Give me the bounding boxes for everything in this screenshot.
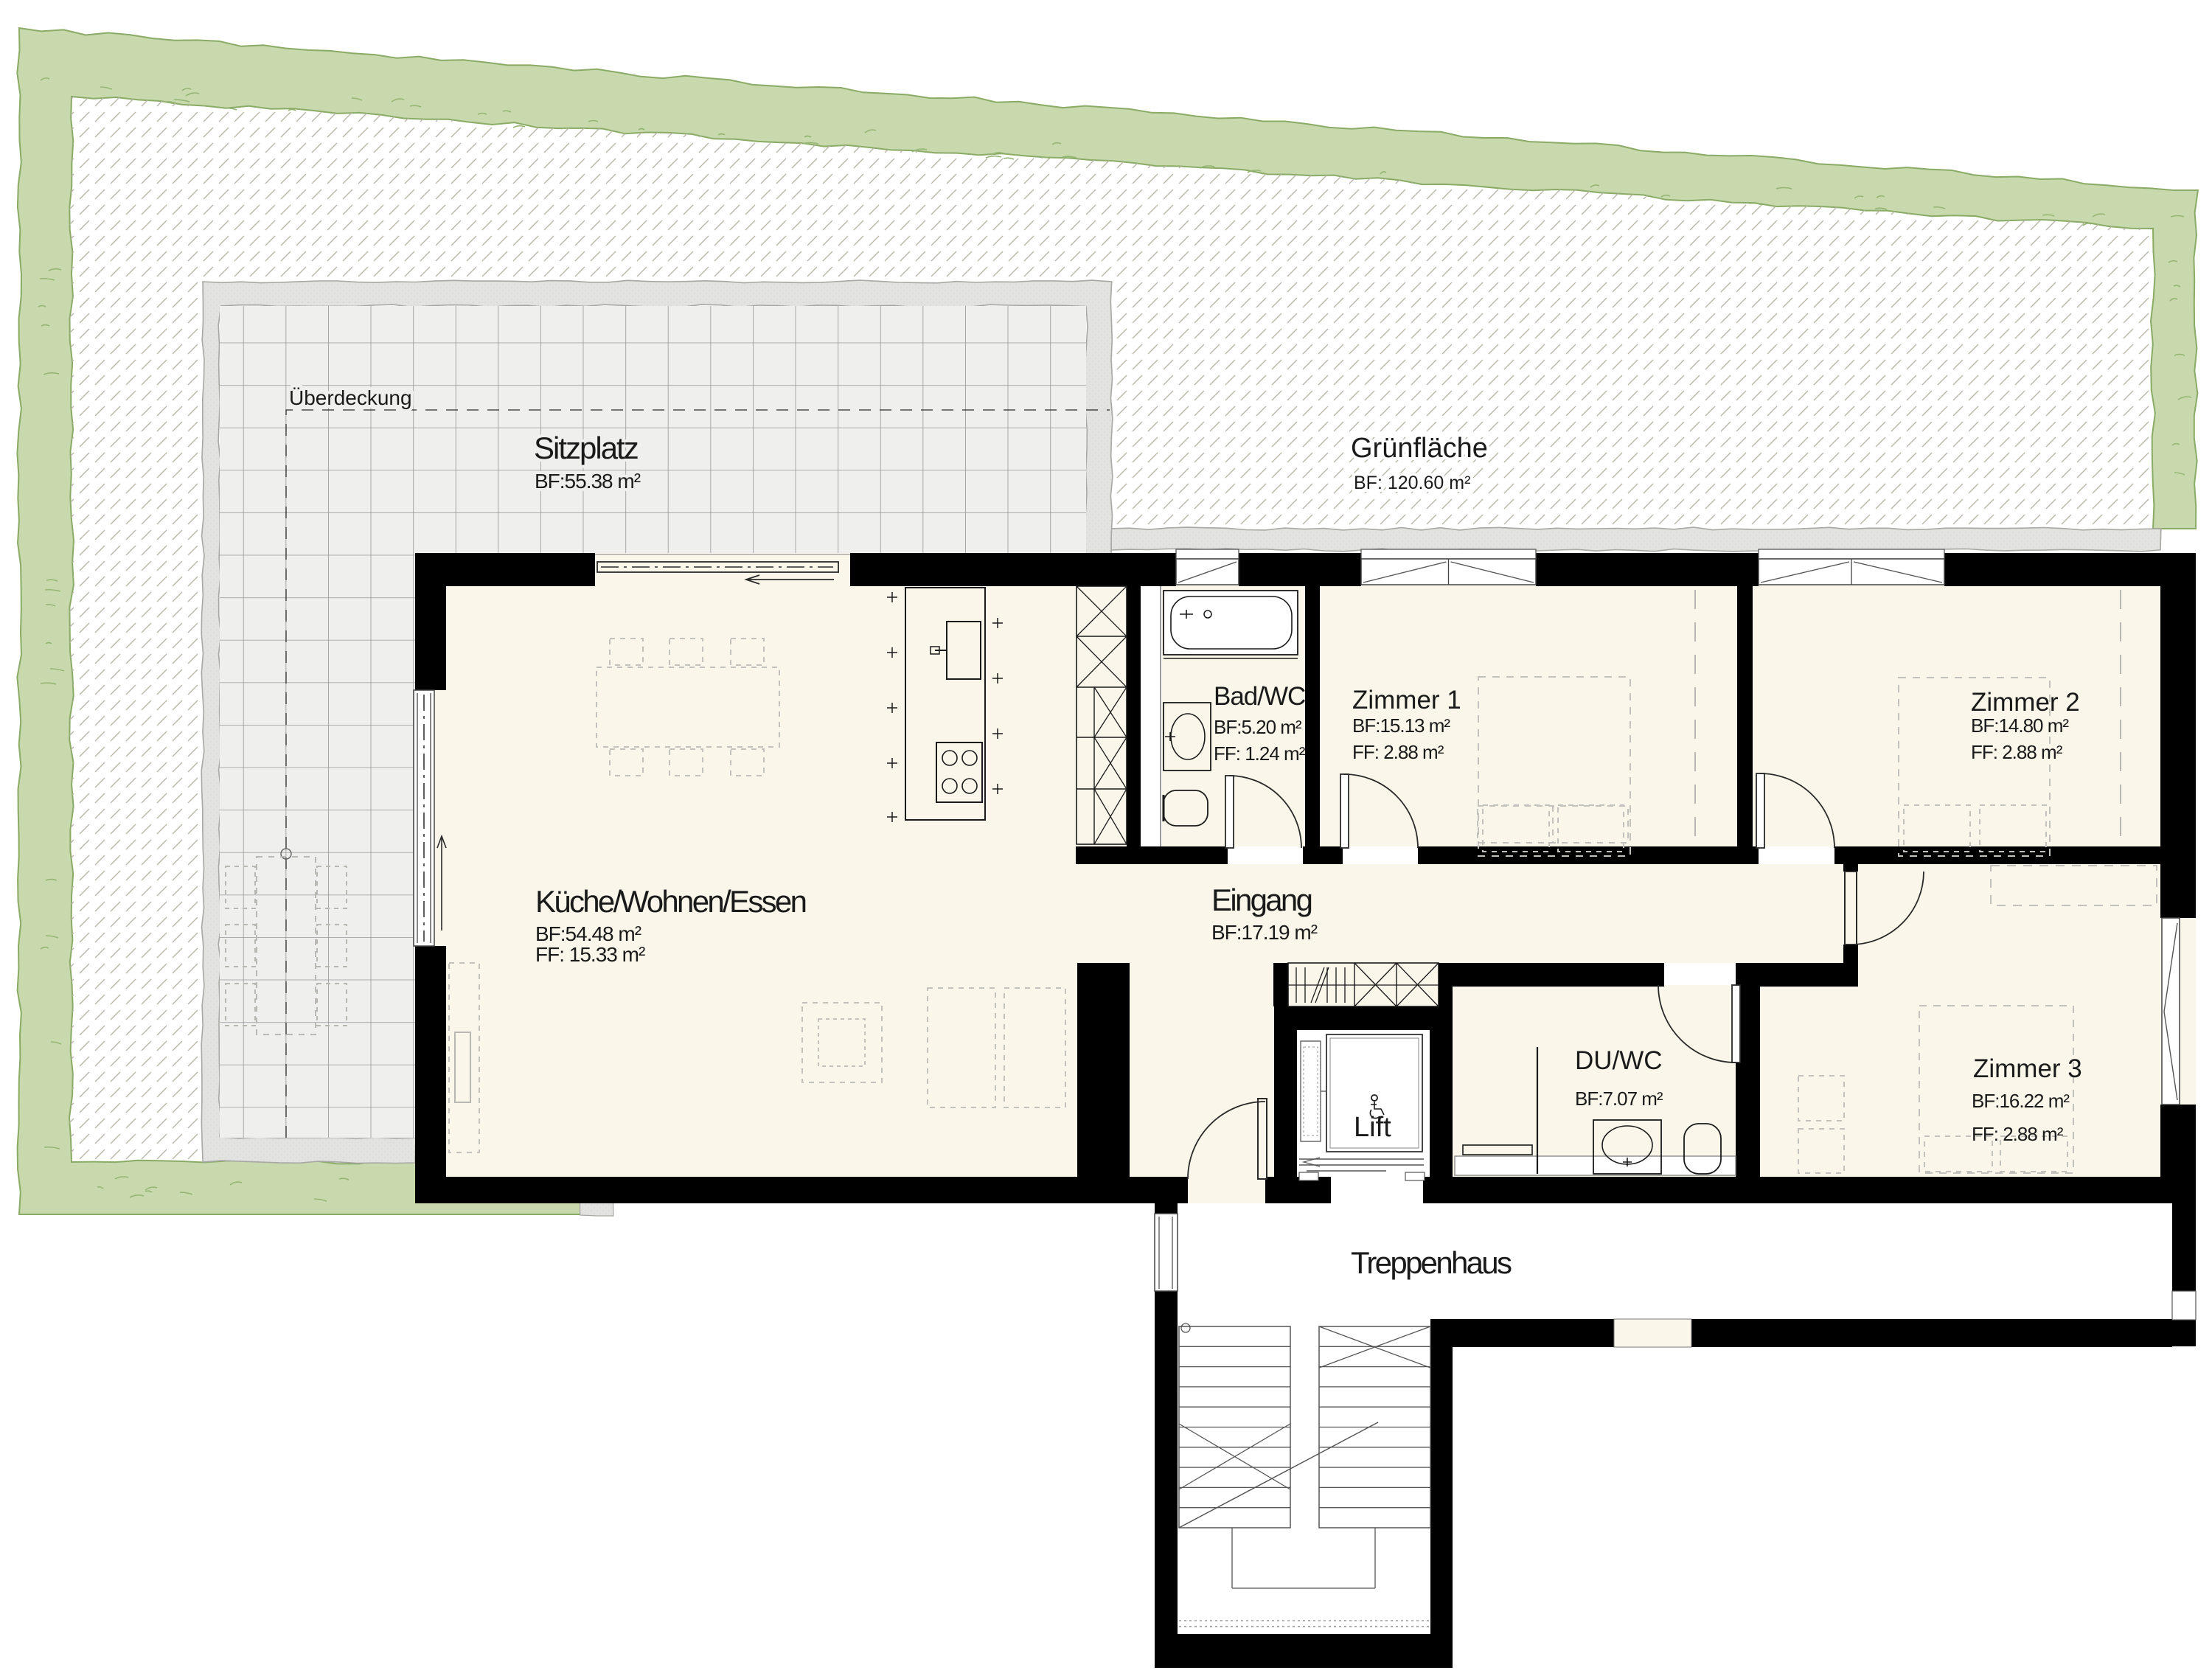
svg-text:Grünfläche: Grünfläche — [1351, 433, 1488, 464]
svg-text:Eingang: Eingang — [1211, 883, 1312, 917]
svg-text:BF: 120.60 m²: BF: 120.60 m² — [1354, 473, 1470, 493]
svg-text:FF: 2.88 m²: FF: 2.88 m² — [1352, 741, 1444, 763]
svg-text:FF: 15.33 m²: FF: 15.33 m² — [535, 943, 645, 966]
svg-text:Küche/Wohnen/Essen: Küche/Wohnen/Essen — [535, 884, 806, 919]
svg-text:FF: 2.88 m²: FF: 2.88 m² — [1971, 741, 2063, 763]
svg-text:BF:14.80 m²: BF:14.80 m² — [1971, 714, 2069, 737]
svg-text:BF:17.19 m²: BF:17.19 m² — [1211, 921, 1318, 944]
svg-text:BF:15.13 m²: BF:15.13 m² — [1352, 714, 1450, 737]
svg-text:BF:16.22 m²: BF:16.22 m² — [1972, 1090, 2070, 1112]
svg-text:Treppenhaus: Treppenhaus — [1351, 1245, 1512, 1280]
svg-text:BF:54.48 m²: BF:54.48 m² — [535, 922, 641, 945]
svg-text:Zimmer 2: Zimmer 2 — [1971, 688, 2080, 717]
svg-text:Sitzplatz: Sitzplatz — [534, 431, 638, 465]
svg-text:Lift: Lift — [1354, 1112, 1391, 1143]
svg-text:Überdeckung: Überdeckung — [289, 386, 412, 409]
svg-text:FF: 2.88 m²: FF: 2.88 m² — [1972, 1123, 2064, 1145]
svg-text:FF: 1.24 m²: FF: 1.24 m² — [1214, 742, 1306, 765]
svg-text:Bad/WC: Bad/WC — [1214, 682, 1305, 711]
svg-text:BF:5.20 m²: BF:5.20 m² — [1214, 716, 1302, 738]
svg-text:Zimmer 3: Zimmer 3 — [1973, 1054, 2082, 1083]
svg-text:BF:55.38 m²: BF:55.38 m² — [535, 470, 641, 493]
svg-text:BF:7.07 m²: BF:7.07 m² — [1575, 1088, 1663, 1110]
svg-text:Zimmer 1: Zimmer 1 — [1352, 686, 1461, 714]
svg-text:DU/WC: DU/WC — [1575, 1046, 1663, 1075]
